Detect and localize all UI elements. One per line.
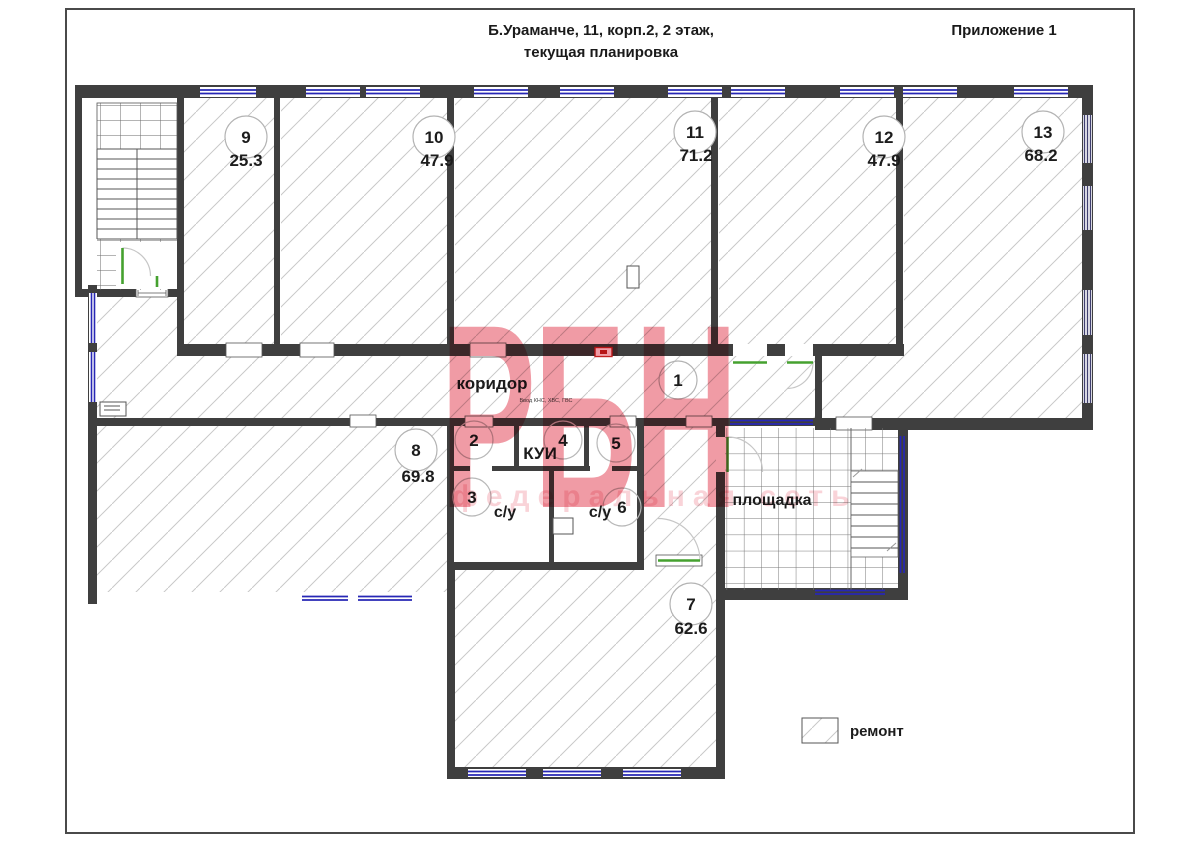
room-7-number: 7	[686, 595, 695, 614]
room-11-label: 11 71.2	[674, 111, 716, 165]
corridor-label: коридор	[456, 374, 527, 393]
room-13-number: 13	[1034, 123, 1053, 142]
stairwell-left	[97, 103, 177, 296]
annex-label: Приложение 1	[928, 22, 1080, 39]
room-11-number: 11	[686, 123, 704, 142]
legend: ремонт	[802, 718, 904, 743]
stairwell-right	[725, 428, 898, 590]
equipment-box	[100, 402, 126, 416]
room-11-area-value: 71.2	[679, 146, 712, 165]
room-10-area-value: 47.9	[420, 151, 453, 170]
kui-label: КУИ	[523, 444, 557, 463]
room-12-number: 12	[875, 128, 894, 147]
floor-plan-page: 9 25.3 10 47.9 11 71.2 12 47.9 13 68.2 8…	[0, 0, 1200, 842]
room-1-number: 1	[673, 371, 682, 390]
room-5-number: 5	[611, 434, 620, 453]
room-8-area-value: 69.8	[401, 467, 434, 486]
legend-hatch-swatch	[802, 718, 838, 743]
room-2-number: 2	[469, 431, 478, 450]
room-12-area-value: 47.9	[867, 151, 900, 170]
room-11-area	[455, 98, 711, 344]
room-9-label: 9 25.3	[225, 116, 267, 170]
title-block: Б.Ураманче, 11, корп.2, 2 этаж, текущая …	[380, 20, 822, 64]
room-4-number: 4	[558, 431, 568, 450]
room-13-area-value: 68.2	[1024, 146, 1057, 165]
room-5-label: 5	[597, 424, 635, 462]
legend-repair-label: ремонт	[850, 723, 904, 740]
page-title-line1: Б.Ураманче, 11, корп.2, 2 этаж,	[380, 20, 822, 42]
room-9-area-value: 25.3	[229, 151, 262, 170]
room-12-label: 12 47.9	[863, 116, 905, 170]
bathroom-left-label: с/у	[494, 504, 516, 521]
page-title-line2: текущая планировка	[380, 42, 822, 64]
room-3-number: 3	[467, 488, 476, 507]
room-8-label: 8 69.8	[395, 429, 437, 486]
room-7-label: 7 62.6	[670, 583, 712, 638]
room-3-label: 3	[453, 478, 491, 516]
utility-note: Ввод КНС, ХВС, ГВС	[519, 398, 572, 404]
room-6-number: 6	[617, 498, 626, 517]
room-9-number: 9	[241, 128, 250, 147]
room-10-number: 10	[425, 128, 444, 147]
shaft-box	[553, 518, 573, 534]
bathroom-right-label: с/у	[589, 504, 611, 521]
landing-label: площадка	[732, 492, 811, 509]
hatched-areas	[97, 98, 1082, 767]
floor-plan-drawing: 9 25.3 10 47.9 11 71.2 12 47.9 13 68.2 8…	[0, 0, 1200, 842]
duct-box	[627, 266, 639, 288]
room-7-area-value: 62.6	[674, 619, 707, 638]
room-8-number: 8	[411, 441, 420, 460]
